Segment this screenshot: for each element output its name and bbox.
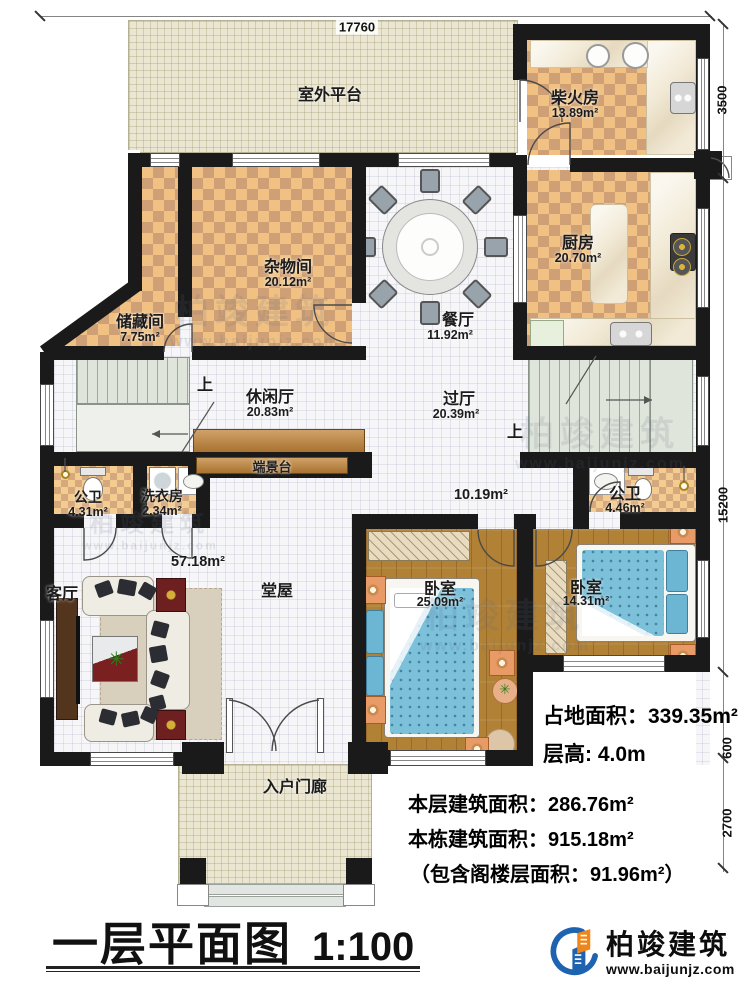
baijun-logo-icon bbox=[548, 925, 600, 977]
double-door-leaf bbox=[317, 698, 324, 753]
dim-right-600: 600 bbox=[720, 734, 735, 762]
window bbox=[697, 376, 709, 446]
room-area-firewood: 13.89m² bbox=[552, 106, 599, 120]
room-label-kitchen: 厨房 bbox=[562, 229, 594, 253]
room-area-dining: 11.92m² bbox=[427, 328, 473, 342]
stove-burner bbox=[673, 238, 691, 256]
room-area-kitchen: 20.70m² bbox=[555, 251, 602, 265]
title-underline-thin bbox=[46, 971, 420, 972]
stairs-left-landing bbox=[76, 404, 190, 452]
pendant-lamp bbox=[679, 481, 689, 491]
dining-chair bbox=[484, 237, 508, 257]
room-area-laundry: 2.34m² bbox=[142, 504, 182, 518]
dining-table-center bbox=[421, 238, 439, 256]
room-label-console: 端景台 bbox=[252, 457, 291, 476]
bed-pillow bbox=[666, 550, 688, 592]
side-table bbox=[156, 710, 186, 740]
room-label-bath1: 公卫 bbox=[74, 487, 102, 507]
wood-stove-burner bbox=[586, 44, 610, 68]
wall-segment bbox=[182, 742, 224, 774]
hall-area-label: 57.18m² bbox=[171, 554, 225, 570]
double-door-leaf bbox=[226, 698, 233, 753]
wall-segment bbox=[178, 153, 192, 317]
dim-right-3500: 3500 bbox=[715, 83, 730, 118]
window bbox=[398, 153, 490, 167]
wall-segment bbox=[513, 40, 527, 80]
wall-segment bbox=[570, 158, 710, 172]
stat-floor-area: 本层建筑面积：286.76m² bbox=[408, 788, 634, 817]
wall-segment bbox=[180, 858, 206, 884]
wall-segment bbox=[44, 346, 164, 360]
window bbox=[150, 153, 180, 167]
bed-sheet bbox=[390, 588, 474, 734]
room-label-porch: 入户门廊 bbox=[263, 773, 327, 797]
wall-segment bbox=[573, 512, 589, 529]
wall-segment bbox=[513, 155, 527, 215]
logo-url: www.baijunjz.com bbox=[606, 961, 735, 977]
wall-segment bbox=[192, 346, 366, 360]
window bbox=[90, 752, 174, 766]
room-area-leisure: 20.83m² bbox=[247, 405, 294, 419]
firewood-sink bbox=[670, 82, 696, 114]
plant-icon: ✳ bbox=[499, 682, 517, 700]
bed-pillow bbox=[666, 594, 688, 634]
tv-screen bbox=[76, 616, 80, 704]
wall-segment bbox=[352, 153, 366, 303]
stat-floor-height: 层高: 4.0m bbox=[543, 738, 646, 768]
wall-segment bbox=[352, 514, 366, 766]
stove-burner bbox=[673, 258, 691, 276]
stairs-right-landing bbox=[650, 357, 693, 453]
room-label-leisure: 休闲厅 bbox=[246, 383, 294, 407]
stairs-up-label: 上 bbox=[507, 418, 523, 442]
pier-base bbox=[343, 884, 375, 906]
title-scale: 1:100 bbox=[312, 925, 414, 969]
wall-segment bbox=[513, 24, 710, 40]
laundry-sink bbox=[183, 474, 204, 489]
wall-segment bbox=[192, 514, 210, 528]
floorplan-canvas: ✳✳室外平台柴火房13.89m²厨房20.70m²杂物间20.12m²储藏间7.… bbox=[0, 0, 750, 987]
bench-cushion bbox=[366, 656, 384, 696]
wall-segment bbox=[573, 468, 589, 514]
window bbox=[697, 208, 709, 308]
dim-line-top bbox=[40, 16, 712, 17]
fridge bbox=[530, 320, 564, 348]
wall-segment bbox=[520, 452, 710, 468]
stairs-up-label: 上 bbox=[197, 371, 213, 395]
title-text: 一层平面图 bbox=[52, 918, 292, 970]
kitchen-sink bbox=[610, 322, 652, 346]
porch-step bbox=[204, 896, 346, 907]
sofa-pillow bbox=[149, 645, 169, 664]
wall-segment bbox=[352, 514, 478, 529]
room-area-hallway: 20.39m² bbox=[433, 407, 480, 421]
sofa-pillow bbox=[117, 579, 137, 597]
room-area-bath1: 4.31m² bbox=[68, 505, 108, 519]
window bbox=[232, 153, 320, 167]
dim-right-15200: 15200 bbox=[716, 484, 731, 526]
stat-building-area: 本栋建筑面积：915.18m² bbox=[408, 823, 634, 852]
window bbox=[40, 384, 54, 446]
dining-chair bbox=[420, 301, 440, 325]
wall-segment bbox=[346, 858, 372, 884]
drawing-title: 一层平面图1:100 bbox=[52, 908, 414, 974]
stat-land-area: 占地面积：339.35m² bbox=[543, 700, 738, 730]
wall-segment bbox=[513, 346, 710, 360]
toilet-tank bbox=[80, 467, 106, 476]
side-table bbox=[156, 578, 186, 612]
baijun-logo bbox=[548, 925, 600, 982]
room-area-storage: 7.75m² bbox=[120, 330, 160, 344]
window bbox=[563, 655, 665, 672]
room-label-storage: 储藏间 bbox=[116, 308, 164, 332]
room-area-sundry: 20.12m² bbox=[265, 275, 312, 289]
tv-cabinet bbox=[56, 598, 78, 720]
pier-base bbox=[177, 884, 209, 906]
window bbox=[697, 58, 709, 150]
room-area-bath2: 4.46m² bbox=[605, 501, 645, 515]
stairs-left-treads bbox=[76, 357, 190, 404]
title-underline bbox=[46, 966, 420, 969]
dim-right-2700: 2700 bbox=[720, 806, 735, 841]
corridor-area-label: 10.19m² bbox=[454, 487, 508, 503]
room-label-firewood: 柴火房 bbox=[551, 84, 599, 108]
room-label-hallway: 过厅 bbox=[443, 385, 475, 409]
window bbox=[390, 750, 486, 766]
wardrobe bbox=[368, 531, 470, 561]
porch-step bbox=[204, 884, 346, 895]
plant-icon: ✳ bbox=[108, 650, 128, 670]
room-area-bedroom1: 25.09m² bbox=[417, 595, 464, 609]
wall-segment bbox=[54, 452, 188, 466]
window bbox=[697, 560, 709, 638]
logo-text-block: 柏竣建筑 www.baijunjz.com bbox=[606, 930, 735, 977]
room-label-sundry: 杂物间 bbox=[264, 253, 312, 277]
window bbox=[513, 215, 527, 303]
wood-stove-burner bbox=[622, 42, 649, 69]
room-area-bedroom2: 14.31m² bbox=[563, 594, 610, 608]
dim-top-17760: 17760 bbox=[336, 20, 378, 35]
bench-cushion bbox=[366, 610, 384, 654]
logo-brand: 柏竣建筑 bbox=[606, 930, 735, 961]
pendant-lamp bbox=[61, 470, 70, 479]
stat-attic-note: （包含阁楼层面积：91.96m²） bbox=[410, 858, 685, 887]
room-label-laundry: 洗衣房 bbox=[141, 486, 183, 506]
room-label-hall: 堂屋 bbox=[261, 577, 293, 601]
leisure-platform bbox=[193, 429, 365, 453]
wall-segment bbox=[128, 153, 142, 291]
room-label-platform: 室外平台 bbox=[298, 81, 362, 105]
dining-chair bbox=[420, 169, 440, 193]
window bbox=[40, 620, 54, 698]
room-label-dining: 餐厅 bbox=[442, 306, 474, 330]
wall-segment bbox=[517, 514, 533, 766]
toilet-tank bbox=[628, 467, 654, 476]
room-label-living: 客厅 bbox=[46, 580, 78, 604]
lamp-table bbox=[489, 650, 515, 676]
